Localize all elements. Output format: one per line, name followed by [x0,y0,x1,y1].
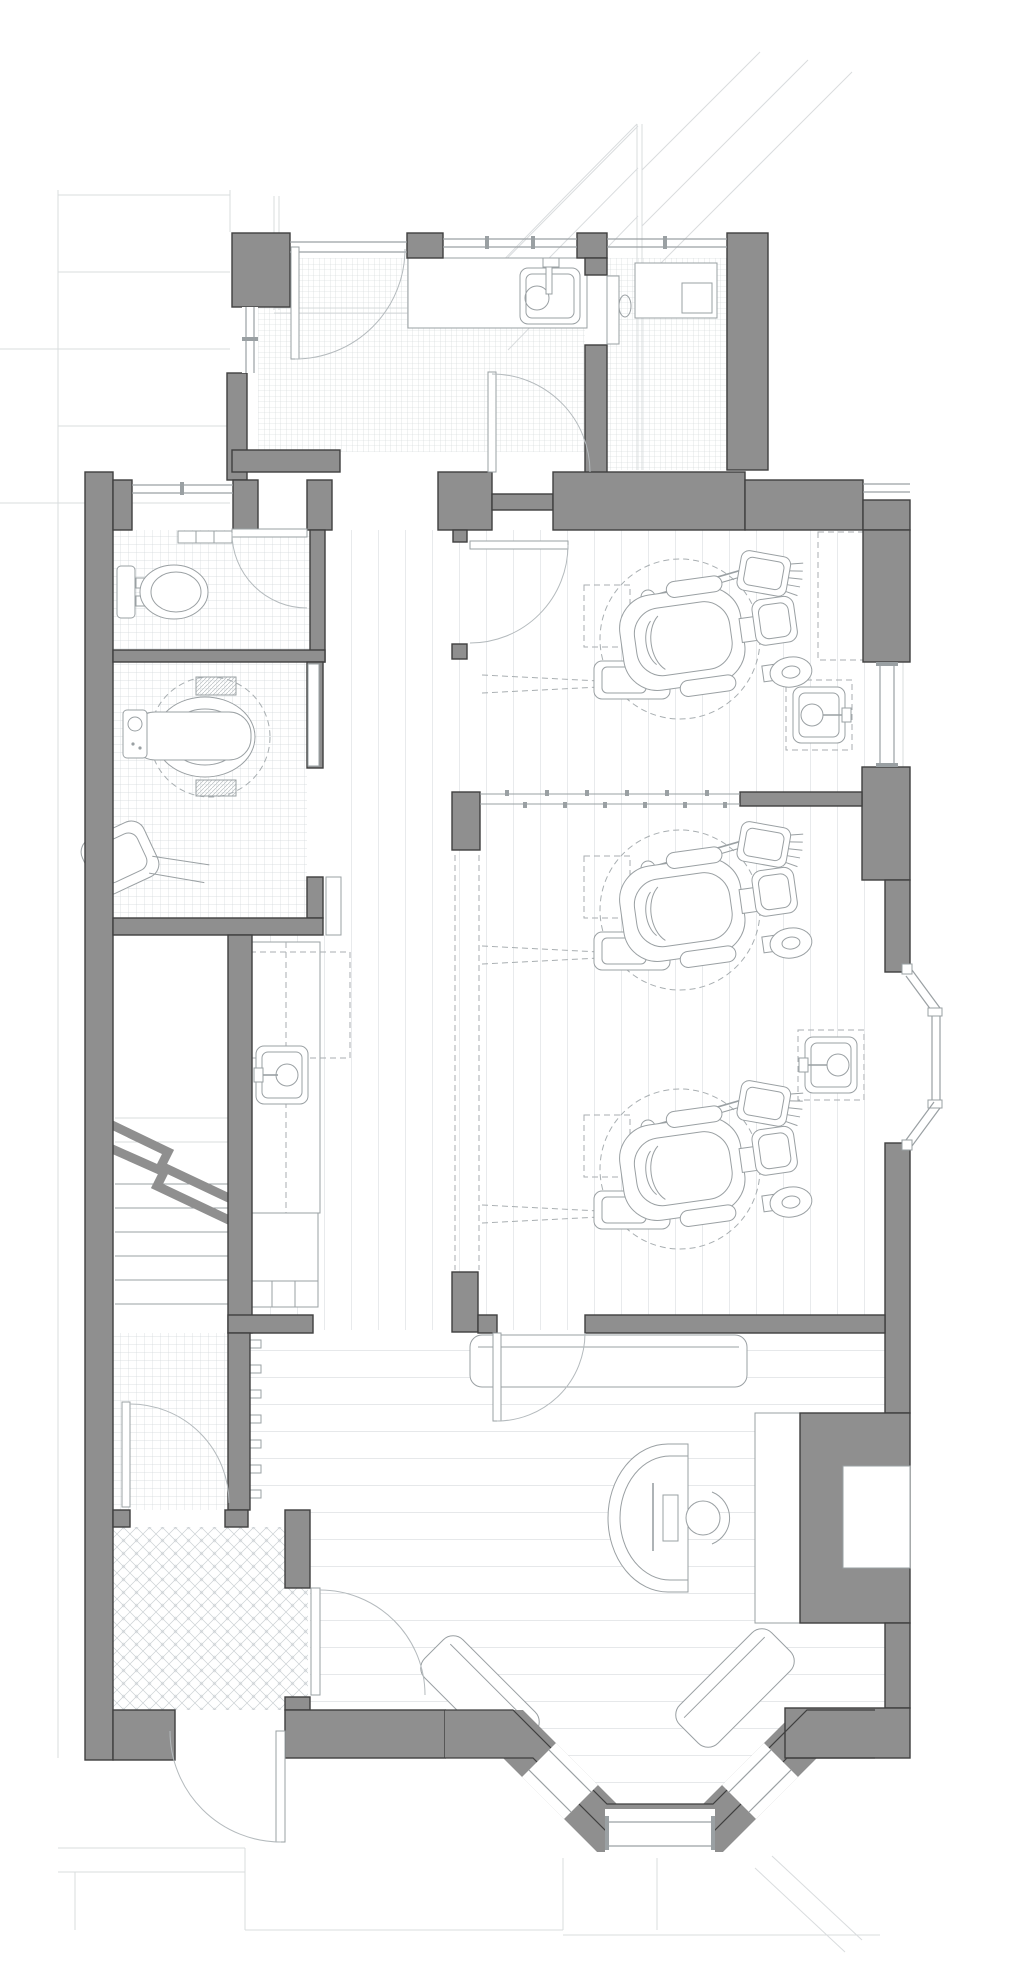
chimney-breast-upper [863,530,910,662]
waiting-bench-top [470,1335,747,1387]
wc-window [132,482,233,495]
coat-hook [250,1340,261,1348]
floor-plan-page [0,0,1024,1987]
toilet [117,565,208,619]
porch-floor [113,1527,308,1710]
corridor-sink [254,1046,308,1104]
west-wall [85,472,113,1760]
reception-monitor [663,1495,678,1541]
east-bay-window [902,964,942,1150]
office-desk [635,263,717,318]
coat-hook [250,1440,261,1448]
base-cabinet [250,1213,318,1281]
decontam-sink [520,258,580,324]
annex-window-west [242,307,258,373]
coat-hook [250,1415,261,1423]
chimney-recess [843,1466,910,1568]
coat-hook [250,1365,261,1373]
coat-hook [250,1490,261,1498]
floor-plan-drawing [0,0,1024,1987]
south-bay-window-center [605,1809,715,1857]
rear-window-northeast [863,484,910,492]
annex-window-north-2 [607,236,727,249]
entrance-door [170,1731,285,1842]
coat-hook [250,1390,261,1398]
coat-hook [250,1465,261,1473]
wc-radiator [178,531,232,543]
desk-return-counter [755,1413,800,1623]
reception-stool [686,1501,720,1535]
surgery1-sink [786,680,852,750]
annex-window-north-1 [443,236,577,249]
surgery2-sink [798,1030,864,1100]
coat-hook-wall [228,1333,250,1510]
drawer-unit [250,1281,318,1307]
